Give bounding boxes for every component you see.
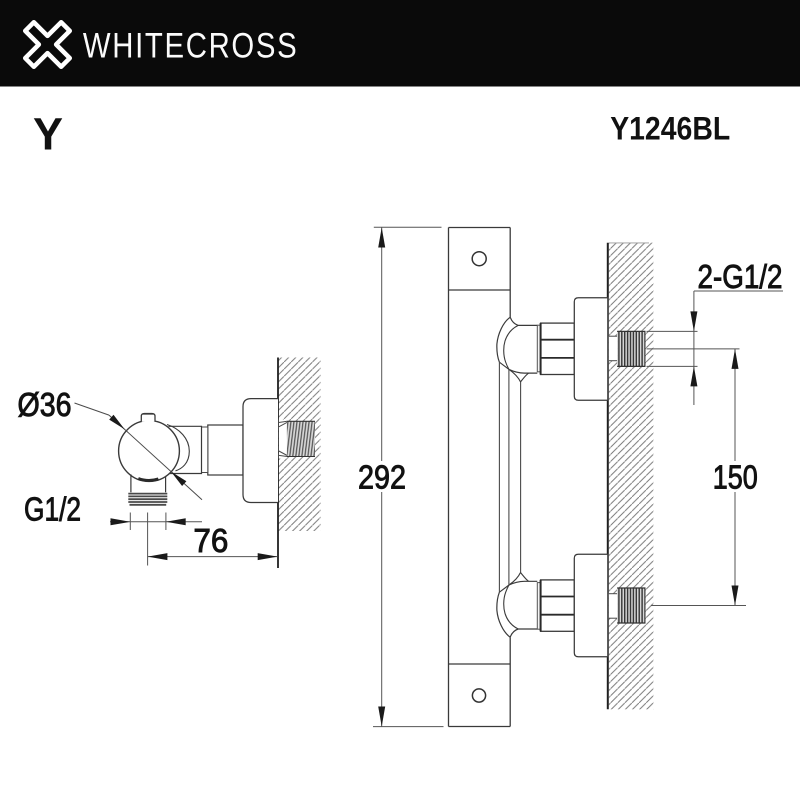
svg-text:150: 150 (713, 459, 758, 496)
svg-text:292: 292 (358, 459, 406, 496)
svg-text:G1/2: G1/2 (24, 490, 81, 527)
svg-text:Y: Y (33, 109, 63, 160)
svg-text:Y1246BL: Y1246BL (610, 110, 730, 146)
svg-text:WHITECROSS: WHITECROSS (83, 27, 299, 66)
svg-text:76: 76 (193, 522, 228, 559)
svg-text:Ø36: Ø36 (18, 386, 72, 423)
svg-text:2-G1/2: 2-G1/2 (698, 258, 783, 295)
